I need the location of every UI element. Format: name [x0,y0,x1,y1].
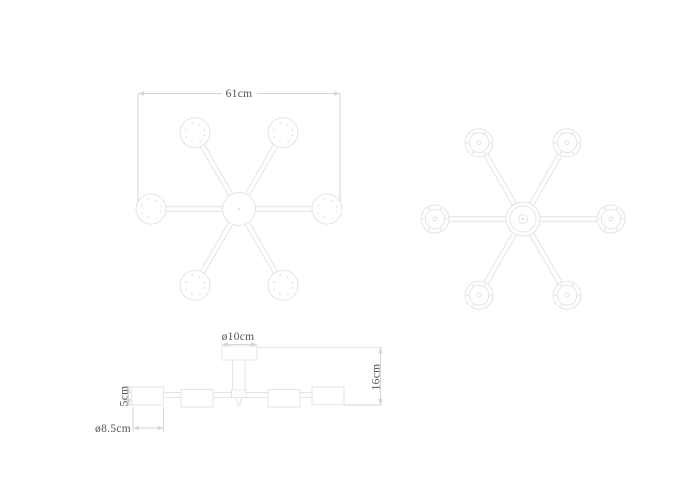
socket-screw-dot [616,208,618,210]
socket-screw-dot [572,152,574,154]
shade-speckle-dot [287,124,289,126]
hub-center-dot [238,208,240,210]
socket-screw-dot [572,284,574,286]
shade-speckle-dot [287,293,289,295]
socket-screw-dot [467,294,469,296]
socket-screw-dot [440,228,442,230]
shade-speckle-dot [323,198,325,200]
socket-screw-dot [484,132,486,134]
shade-side [181,390,213,408]
shade-circle [136,194,166,224]
arm-line [201,147,229,196]
shade-speckle-dot [141,205,143,207]
shade-speckle-dot [203,287,205,289]
shade-speckle-dot [191,140,193,142]
shade-speckle-dot [292,282,294,284]
shade-speckle-dot [287,141,289,143]
shade-circle [180,270,210,300]
arm-line [249,222,277,271]
shade-side [268,390,300,408]
technical-drawing-canvas: 61cm ø10cm 16cm [0,0,700,494]
socket-screw-dot [484,304,486,306]
socket-screw-dot [423,218,425,220]
socket-screw-dot [555,142,557,144]
shade-speckle-dot [331,200,333,202]
socket-screw-dot [555,294,557,296]
shade-speckle-dot [335,211,337,213]
shade-speckle-dot [323,217,325,219]
dim-canopy-diameter-label: ø10cm [222,331,255,343]
arm-connector [164,393,182,398]
arm-line [488,154,517,203]
socket-screw-dot [616,228,618,230]
shade-speckle-dot [147,217,149,219]
shade-circle [268,118,298,148]
shade-speckle-dot [273,136,275,138]
shade-speckle-dot [336,206,338,208]
shade-speckle-dot [287,277,289,279]
socket-screw-dot [560,304,562,306]
shade-speckle-dot [273,129,275,131]
socket-screw-dot [472,304,474,306]
hub-center-dot [522,218,525,221]
shade-speckle-dot [273,281,275,283]
socket-screw-dot [446,218,448,220]
shade-speckle-dot [279,122,281,124]
shade-speckle-dot [204,282,206,284]
socket-screw-dot [572,304,574,306]
arm-line [245,145,273,194]
arm-connector [213,393,233,398]
shade-side [132,387,164,405]
shade-speckle-dot [204,129,206,131]
dim-overall-width-label: 61cm [226,88,253,100]
socket-screw-dot [560,284,562,286]
drawing-page: 61cm ø10cm 16cm [0,0,700,494]
socket-screw-dot [428,228,430,230]
shade-speckle-dot [185,289,187,291]
shade-circle [268,270,298,300]
shade-speckle-dot [191,122,193,124]
shade-speckle-dot [317,212,319,214]
socket-screw-dot [472,152,474,154]
arm-connector [300,393,312,398]
shade-speckle-dot [292,129,294,131]
shade-speckle-dot [199,293,201,295]
socket-screw-dot [467,142,469,144]
shade-side [312,387,344,405]
shade-speckle-dot [203,134,205,136]
arm-line [484,156,512,205]
canopy [222,346,257,360]
arm-line [530,154,559,203]
socket-screw-dot [472,284,474,286]
shade-speckle-dot [273,289,275,291]
finial-line [235,398,238,403]
finial-ball [237,403,240,406]
arm-line [530,235,559,284]
socket-screw-dot [572,132,574,134]
socket-screw-dot [604,228,606,230]
shade-speckle-dot [159,211,161,213]
socket-screw-dot [578,294,580,296]
top-view-width-dimension: 61cm [138,88,340,201]
arm-line [245,224,273,273]
shade-speckle-dot [185,281,187,283]
top-view-drawing [136,118,342,300]
shade-speckle-dot [160,206,162,208]
socket-screw-dot [578,142,580,144]
arm-line [533,156,562,205]
shade-speckle-dot [279,140,281,142]
shade-speckle-dot [199,277,201,279]
socket-screw-dot [484,152,486,154]
shade-speckle-dot [199,124,201,126]
shade-speckle-dot [317,205,319,207]
shade-circle [180,118,210,148]
shade-speckle-dot [331,217,333,219]
socket-screw-dot [490,294,492,296]
arm-line [488,235,517,284]
bottom-view-drawing [421,129,625,309]
socket-screw-dot [560,152,562,154]
shade-speckle-dot [291,134,293,136]
arm-line [204,145,232,194]
shade-circle [312,194,342,224]
socket-screw-dot [560,132,562,134]
arm-line [484,233,512,282]
shade-speckle-dot [185,136,187,138]
shade-speckle-dot [141,212,143,214]
socket-screw-dot [604,208,606,210]
dim-fixture-height-label: 16cm [371,364,383,391]
shade-speckle-dot [279,274,281,276]
shade-speckle-dot [147,198,149,200]
socket-screw-dot [599,218,601,220]
socket-screw-dot [484,284,486,286]
shade-speckle-dot [185,129,187,131]
shade-speckle-dot [155,200,157,202]
arm-line [249,147,277,196]
hub-block [232,390,247,398]
socket-screw-dot [490,142,492,144]
socket-screw-dot [472,132,474,134]
arm-connector [245,393,268,398]
finial-line [240,398,243,403]
side-view-drawing: ø10cm 16cm 5cm ø8.5cm [95,331,382,435]
arm-line [201,222,229,271]
shade-speckle-dot [191,274,193,276]
socket-screw-dot [622,218,624,220]
shade-speckle-dot [199,141,201,143]
shade-speckle-dot [191,293,193,295]
socket-screw-dot [428,208,430,210]
dim-shade-height-label: 5cm [119,386,131,407]
shade-speckle-dot [291,287,293,289]
arm-line [204,224,232,273]
dim-shade-diameter-label: ø8.5cm [95,423,131,435]
socket-screw-dot [440,208,442,210]
shade-speckle-dot [155,217,157,219]
shade-speckle-dot [279,293,281,295]
arm-line [533,233,562,282]
